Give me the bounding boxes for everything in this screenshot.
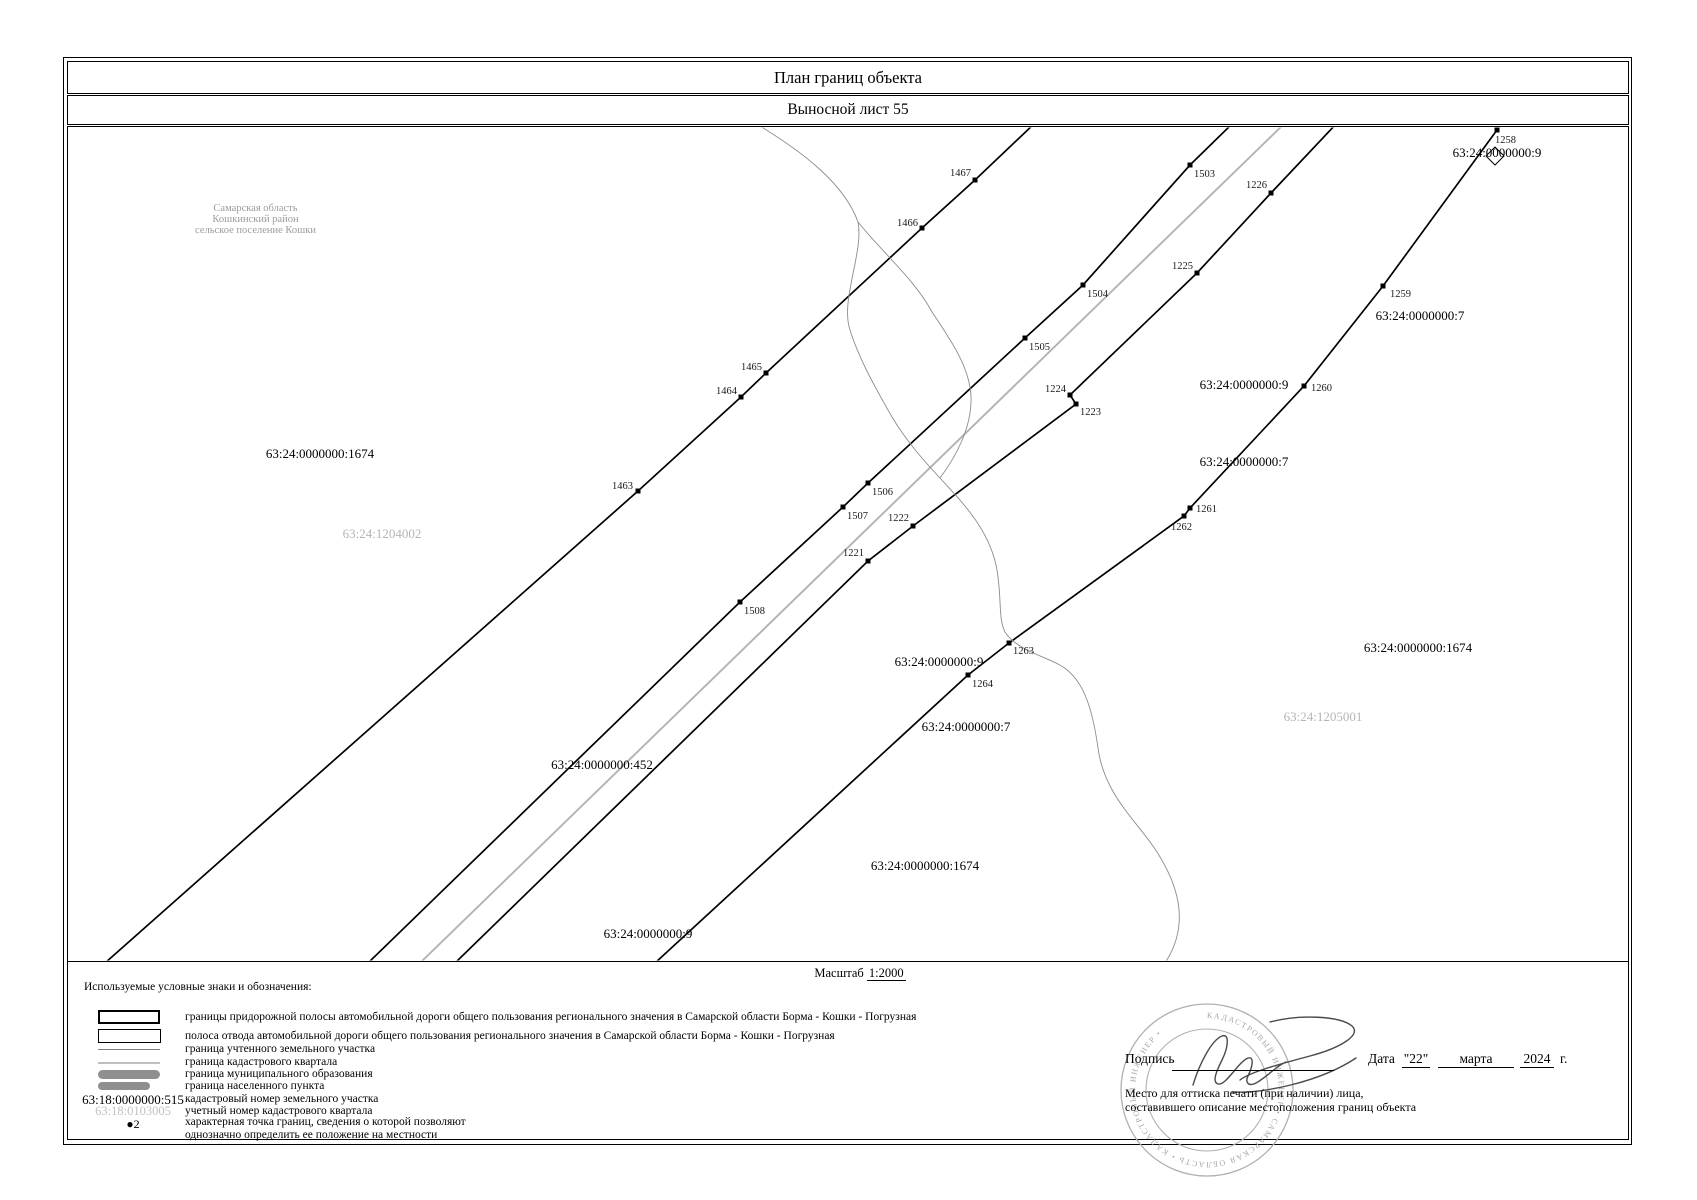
scale-label: Масштаб 1:2000 <box>770 966 950 981</box>
region-note-line: сельское поселение Кошки <box>158 225 353 236</box>
subtitle-bar: Выносной лист 55 <box>67 95 1629 125</box>
sheet-subtitle: Выносной лист 55 <box>787 101 908 118</box>
roadside-strip-symbol <box>98 1010 160 1024</box>
legend-heading: Используемые условные знаки и обозначени… <box>84 981 312 993</box>
date-year: 2024 <box>1520 1051 1554 1068</box>
map-legend-divider <box>68 961 1628 962</box>
stamp-note-line: составившего описание местоположения гра… <box>1125 1100 1416 1114</box>
cadastral-quarter-line-symbol <box>98 1062 160 1064</box>
date-suffix: г. <box>1560 1051 1567 1067</box>
right-of-way-symbol <box>98 1029 161 1043</box>
legend-item-label: границы придорожной полосы автомобильной… <box>185 1011 916 1024</box>
municipal-boundary-symbol <box>98 1070 160 1079</box>
legend-item-label: полоса отвода автомобильной дороги общег… <box>185 1030 835 1043</box>
legend-item-label: граница учтенного земельного участка <box>185 1043 375 1056</box>
region-note-line: Кошкинский район <box>158 214 353 225</box>
region-note-line: Самарская область <box>158 203 353 214</box>
date-month: марта <box>1438 1051 1514 1068</box>
char-point-number: 2 <box>134 1117 140 1131</box>
signature-label: Подпись <box>1125 1051 1175 1067</box>
settlement-boundary-symbol <box>98 1082 150 1090</box>
legend-item-label: характерная точка границ, сведения о кот… <box>185 1116 466 1129</box>
date-day: "22" <box>1402 1051 1430 1068</box>
legend-item: полоса отвода автомобильной дороги общег… <box>0 1029 1697 1043</box>
char-point-dot: ● <box>126 1117 133 1131</box>
page-title: План границ объекта <box>774 68 922 87</box>
legend-item-label: однозначно определить ее положение на ме… <box>185 1129 437 1142</box>
legend-item: границы придорожной полосы автомобильной… <box>0 1010 1697 1024</box>
registered-parcel-line-symbol <box>98 1049 160 1050</box>
date-label: Дата <box>1368 1051 1395 1067</box>
signature-line <box>1172 1070 1334 1071</box>
cadastral-plan-page: План границ объекта Выносной лист 55 Сам… <box>0 0 1697 1200</box>
title-bar: План границ объекта <box>67 61 1629 94</box>
region-note: Самарская область Кошкинский район сельс… <box>158 203 353 236</box>
legend-item: ●2 характерная точка границ, сведения о … <box>0 1116 1697 1144</box>
scale-value: 1:2000 <box>867 966 906 981</box>
stamp-note-line: Место для оттиска печати (при наличии) л… <box>1125 1086 1364 1100</box>
scale-prefix: Масштаб <box>814 966 863 980</box>
